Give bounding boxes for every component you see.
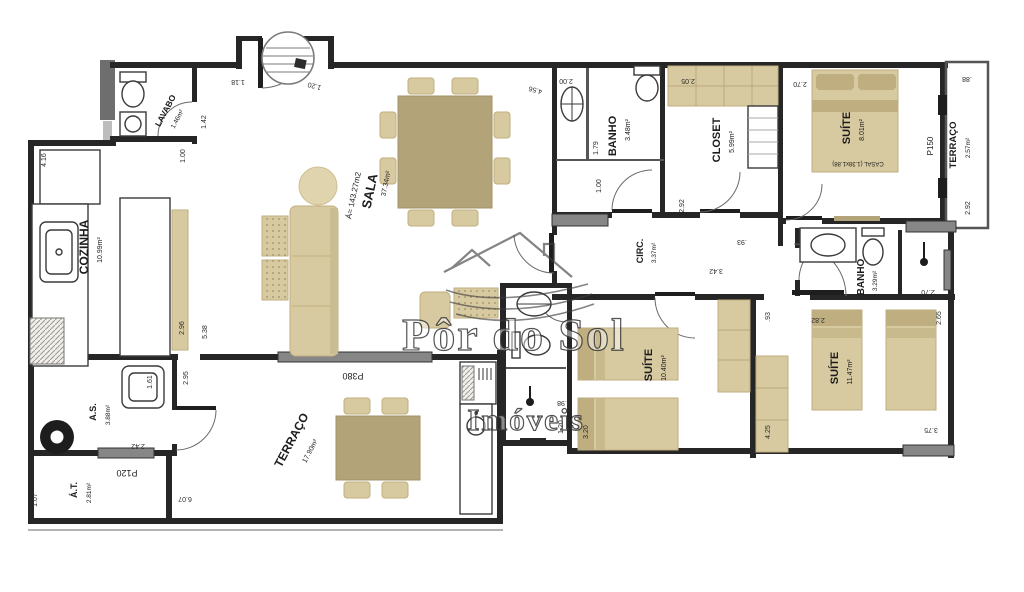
dim-label: 4.16 — [41, 153, 48, 167]
sliding-door-suite3 — [903, 445, 954, 456]
dim-label: 4.25 — [765, 425, 772, 439]
dim-label: 2.82 — [811, 316, 825, 323]
chair — [452, 78, 478, 94]
dim-label: 2.42 — [131, 442, 145, 449]
fridge — [40, 150, 100, 204]
room-label-terraco1: TERRAÇO — [948, 122, 959, 169]
sofa-back — [330, 208, 338, 354]
suite-master-furniture — [812, 70, 898, 221]
room-label-suite2: SUÍTE — [642, 349, 655, 381]
terrace-furniture — [336, 362, 496, 514]
room-area-circ: 3.37m² — [651, 242, 658, 263]
room-area-lavabo: 1.46m² — [170, 108, 186, 130]
dim-label: 2.05 — [681, 77, 695, 84]
dim-label: 1.20 — [307, 80, 322, 90]
room-label-circ: CIRC. — [635, 239, 645, 264]
round-rug — [299, 167, 337, 205]
chair — [382, 398, 408, 414]
wardrobe — [718, 300, 750, 392]
room-area-at: 2.81m² — [86, 482, 93, 503]
island-counter — [120, 198, 170, 356]
dim-label: 1.00 — [596, 179, 603, 193]
room-area-closet: 5.99m² — [729, 130, 736, 152]
dim-label: 2.92 — [679, 199, 686, 213]
dim-label: .93 — [737, 238, 747, 245]
dim-label: 1.18 — [231, 78, 245, 85]
dim-label: 2.96 — [179, 321, 186, 335]
watermark-brand: Pôr do Sol — [402, 309, 626, 360]
room-label-cozinha: COZINHA — [77, 219, 91, 274]
chair — [452, 210, 478, 226]
dim-label: .93 — [765, 312, 772, 322]
dim-label: 2.42 — [28, 463, 35, 477]
ottoman — [262, 216, 288, 256]
entry-symbol — [262, 32, 314, 84]
room-label-closet: CLOSET — [711, 117, 723, 162]
suite3-furniture — [756, 310, 936, 452]
floor-plan-image: 1.18 1.20 1.42 1.00 4.16 2.96 5.38 4.56 … — [0, 0, 1024, 592]
toilet — [122, 81, 144, 107]
kitchen-fixtures — [30, 150, 188, 366]
room-area-suite1: 8.01m² — [859, 118, 866, 140]
dim-label: 6.07 — [178, 495, 192, 502]
dim-label: 4.56 — [528, 84, 543, 94]
stove — [30, 318, 64, 364]
dim-label: .88 — [962, 75, 972, 82]
room-area-suite2: 10.40m² — [661, 354, 668, 380]
dim-label: 1.61 — [147, 375, 154, 389]
shower-door — [944, 250, 951, 290]
lavabo-fixtures — [120, 72, 146, 136]
chair — [494, 158, 510, 184]
terrace-table — [336, 416, 420, 480]
room-label-suite3: SUÍTE — [828, 352, 841, 384]
ottoman — [262, 260, 288, 300]
shelves — [748, 106, 778, 168]
door-label-p380: P380 — [342, 371, 363, 381]
bed-size-label: CASAL (1.38x1.88) — [832, 160, 883, 166]
dim-label: 5.38 — [202, 325, 209, 339]
room-area-cozinha: 10.99m² — [97, 236, 104, 262]
room-label-at: Á.T. — [69, 482, 79, 498]
room-area-terraco2: 17.90m² — [302, 438, 321, 465]
dim-label: 1.42 — [201, 115, 208, 129]
sliding-door-banho — [552, 214, 608, 226]
service-area-fixtures — [40, 366, 164, 454]
toilet — [636, 75, 658, 101]
shower-drain — [920, 258, 928, 266]
pillow — [858, 74, 896, 90]
chair — [408, 78, 434, 94]
dim-label: 3.75 — [924, 426, 938, 433]
dim-label: 3.42 — [709, 267, 723, 274]
watermark-brand2: Imóveis — [467, 402, 584, 437]
room-area-banho2: 3.29m² — [872, 270, 879, 291]
chair — [344, 482, 370, 498]
dim-label: 2.00 — [559, 77, 573, 84]
room-area-terraco1: 2.57m² — [965, 137, 972, 158]
dim-label: 1.07 — [32, 493, 39, 507]
dining-table — [398, 96, 492, 208]
terrace-suite-rails — [906, 62, 988, 232]
room-label-banho2: BANHO — [856, 258, 867, 295]
dim-label: 2.65 — [936, 311, 943, 325]
room-label-as: A.S. — [88, 403, 98, 421]
room-label-banho1: BANHO — [607, 115, 619, 156]
chair — [344, 398, 370, 414]
room-area-banho1: 3.48m² — [625, 118, 632, 140]
sink — [811, 234, 845, 256]
dim-label: 1.79 — [593, 141, 600, 155]
dim-label: 2.92 — [965, 201, 972, 215]
pillow — [816, 74, 854, 90]
dim-label: 2.70 — [921, 288, 935, 295]
door-label-p150: P150 — [926, 136, 935, 155]
chair — [382, 482, 408, 498]
chair — [408, 210, 434, 226]
toilet-tank — [634, 66, 660, 75]
room-label-suite1: SUÍTE — [840, 112, 853, 144]
dim-label: 2.70 — [793, 80, 807, 87]
room-area-as: 3.88m² — [105, 404, 112, 425]
door-label-p120: P120 — [116, 468, 137, 478]
room-area-suite3: 11.47m² — [847, 359, 854, 385]
chair — [380, 112, 396, 138]
dim-label: 1.00 — [180, 149, 187, 163]
chair — [494, 112, 510, 138]
floor-plan: 1.18 1.20 1.42 1.00 4.16 2.96 5.38 4.56 … — [0, 0, 1024, 592]
toilet-tank — [862, 228, 884, 236]
rug — [834, 216, 880, 221]
dim-label: 2.95 — [183, 371, 190, 385]
sliding-door — [906, 221, 956, 232]
pillow — [886, 310, 936, 326]
wardrobe — [756, 356, 788, 452]
